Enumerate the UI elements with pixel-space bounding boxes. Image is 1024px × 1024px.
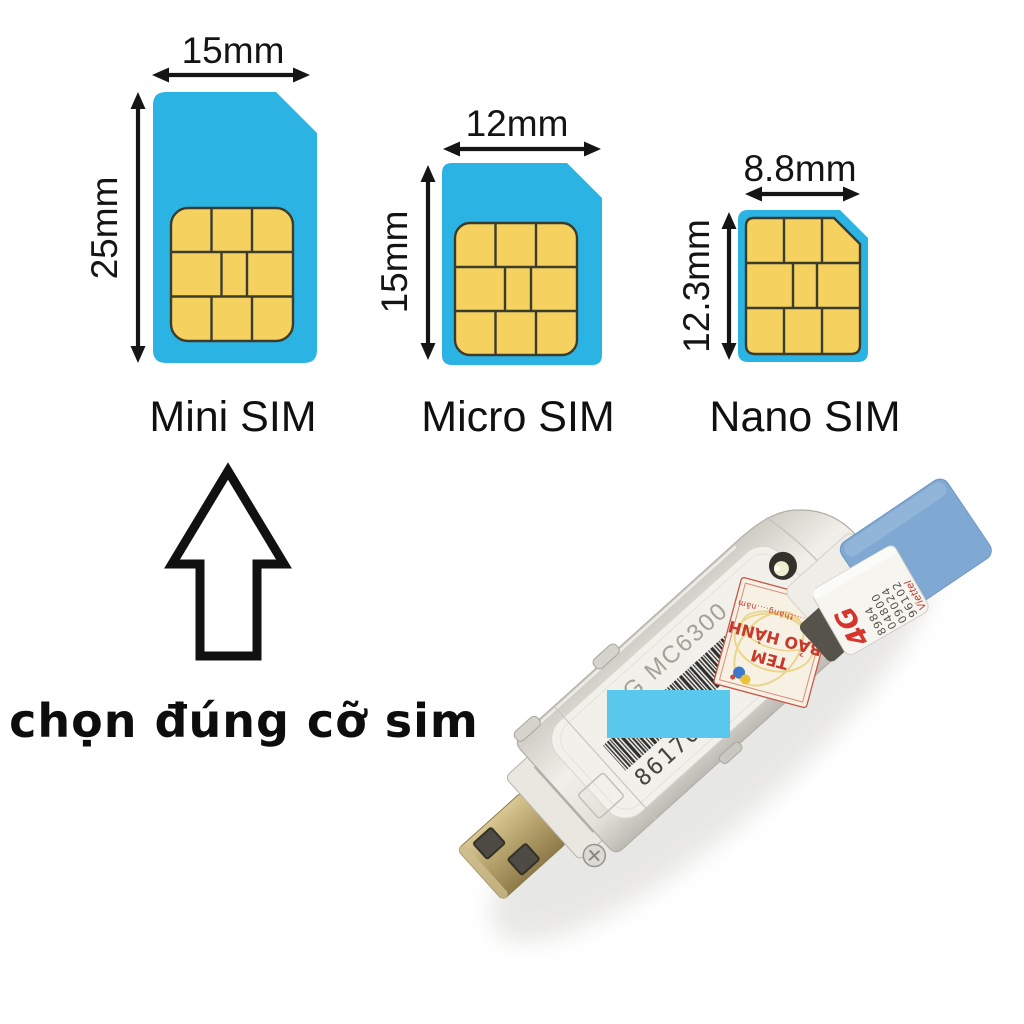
mini-sim-figure: 15mm 25mm Mini SIM: [84, 30, 317, 441]
nano-sim-chip: [746, 218, 860, 354]
arrowhead: [584, 142, 601, 157]
micro-sim-width-label: 12mm: [466, 103, 569, 144]
mini-sim-name: Mini SIM: [149, 393, 316, 441]
up-arrow-icon: [172, 471, 284, 656]
arrowhead: [293, 68, 310, 83]
mini-sim-width-label: 15mm: [182, 30, 285, 71]
mini-sim-chip: [171, 208, 293, 341]
arrowhead: [443, 142, 460, 157]
micro-sim-name: Micro SIM: [421, 393, 615, 441]
micro-sim-height-label: 15mm: [374, 211, 415, 314]
caption-text: chọn đúng cỡ sim: [9, 694, 479, 748]
nano-sim-name: Nano SIM: [709, 393, 900, 441]
censor-box: [607, 690, 730, 738]
sim-size-guide-image: 15mm 25mm Mini SIM 12mm: [0, 0, 1024, 1024]
arrowhead: [722, 212, 737, 229]
arrowhead: [131, 92, 146, 109]
micro-sim-chip: [455, 223, 577, 355]
nano-sim-height-label: 12.3mm: [676, 219, 717, 353]
arrowhead: [131, 346, 146, 363]
arrowhead: [421, 165, 436, 182]
arrowhead: [152, 68, 169, 83]
mini-sim-height-label: 25mm: [84, 177, 125, 280]
nano-sim-width-label: 8.8mm: [743, 148, 856, 189]
arrowhead: [722, 343, 737, 360]
arrowhead: [421, 343, 436, 360]
micro-sim-figure: 12mm 15mm Micro SIM: [374, 103, 615, 441]
nano-sim-figure: 8.8mm 12.3mm Nano SIM: [676, 148, 901, 441]
